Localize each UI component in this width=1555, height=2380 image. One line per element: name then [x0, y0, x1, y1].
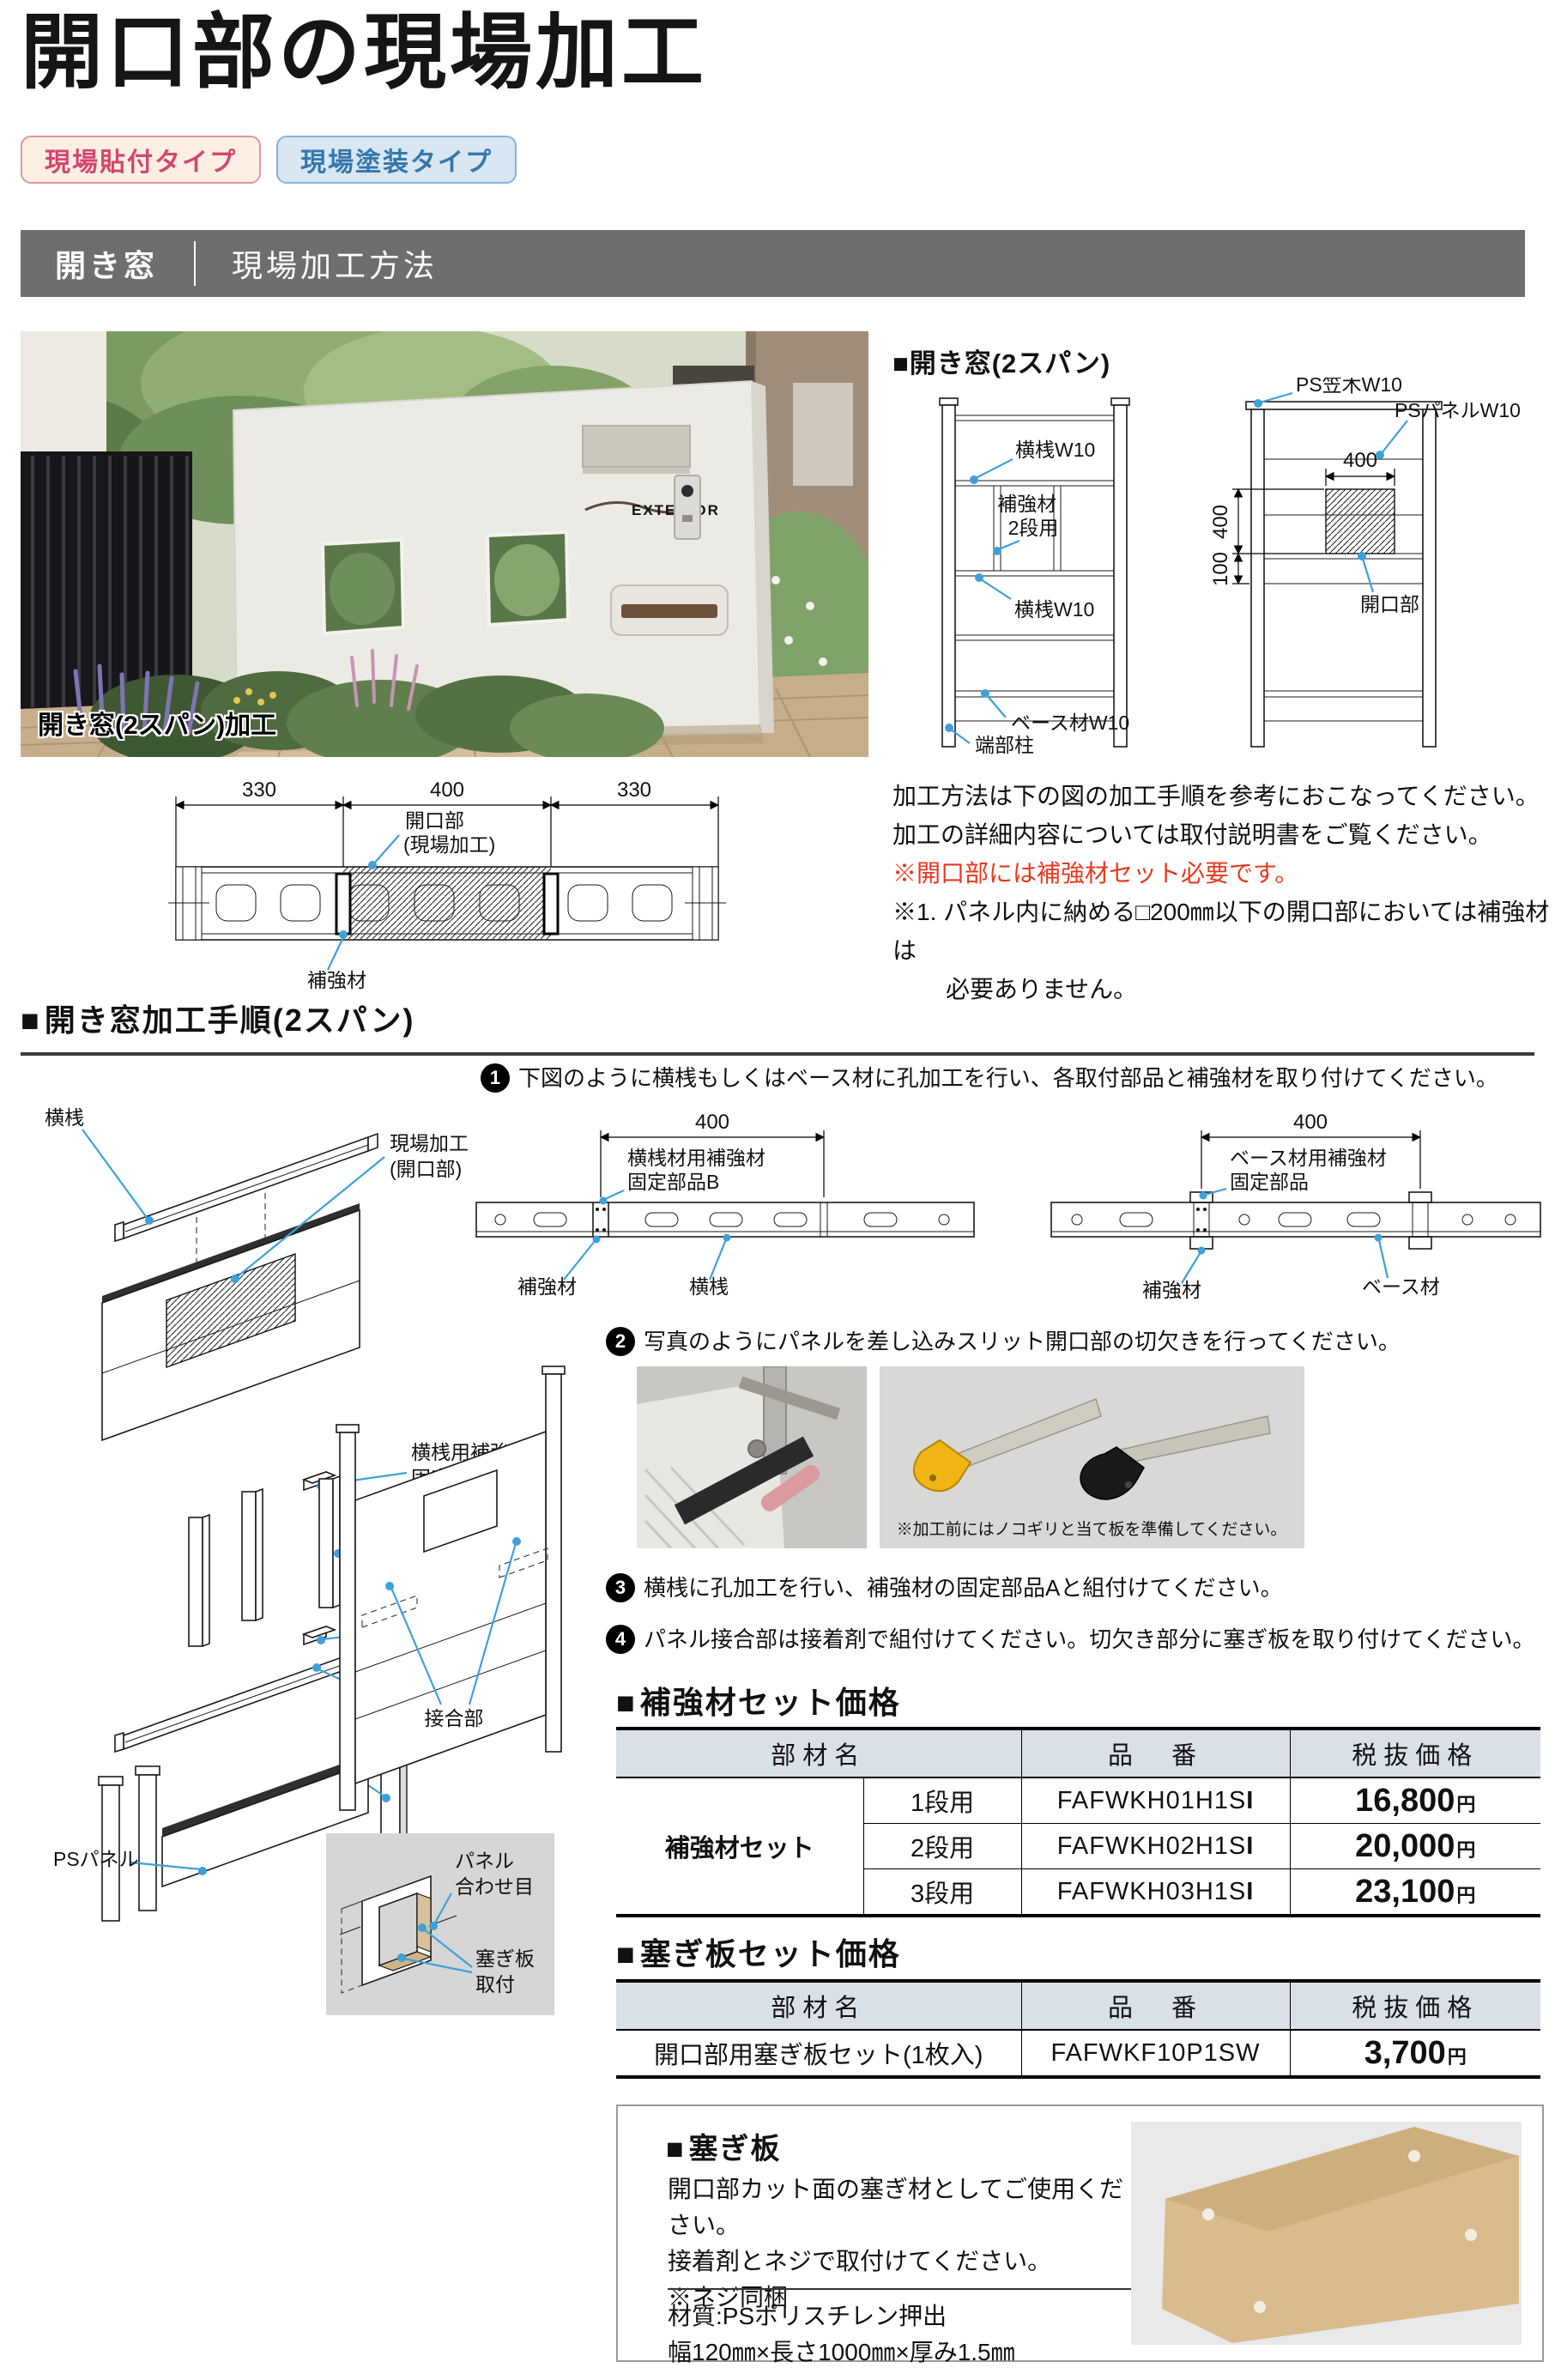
spec-line-size: 幅120㎜×長さ1000㎜×厚み1.5㎜ [668, 2335, 1148, 2371]
label-base-fixing: ベース材用補強材 固定部品 [1230, 1147, 1392, 1193]
badge-onsite-paste-type: 現場貼付タイプ [21, 136, 261, 184]
heading-square-icon: ■ [616, 1936, 637, 1971]
label-base-member: ベース材 [1362, 1275, 1440, 1298]
step-3-number: 3 [606, 1573, 635, 1602]
plug-plate-description: 開口部カット面の塞ぎ材としてご使用ください。 接着剤とネジで取付けてください。 … [668, 2171, 1131, 2316]
opening-hatch-area [343, 867, 551, 940]
step1-rail-diagrams: 400 横桟材用補強材 固定部品B 補強材 横桟 [468, 1101, 1545, 1303]
badge-onsite-paint-type: 現場塗装タイプ [276, 136, 517, 184]
dim-400-center: 400 [430, 778, 464, 802]
col-header-part-name: 部材名 [616, 1981, 1021, 2030]
section-bar-right-label: 現場加工方法 [232, 241, 438, 286]
plug-plate-spec: 材質:PSポリスチレン押出 幅120㎜×長さ1000㎜×厚み1.5㎜ [668, 2298, 1148, 2371]
col-header-part-number: 品 番 [1021, 1729, 1290, 1777]
price-cell: 16,800円 [1290, 1777, 1540, 1824]
reinforce-bar-left [336, 874, 350, 934]
table-row: 補強材セット 1段用 FAFWKH01H1SI 16,800円 [616, 1777, 1540, 1824]
cutting-work-photo [637, 1366, 867, 1548]
col-header-part-name: 部材名 [616, 1729, 1021, 1777]
info-line-2: 接着剤とネジで取付けてください。 [668, 2244, 1131, 2280]
label-ps-panel: PSパネルW10 [1395, 399, 1521, 421]
code-cell: FAFWKH03H1SI [1021, 1869, 1290, 1917]
dim-400: 400 [1293, 1111, 1328, 1134]
spec-line-material: 材質:PSポリスチレン押出 [668, 2298, 1148, 2335]
size-cell: 1段用 [863, 1777, 1021, 1824]
label-ps-panel: PSパネル [53, 1848, 139, 1870]
dim-400-width: 400 [1343, 449, 1377, 472]
note-line-1: 加工方法は下の図の加工手順を参考におこなってください。 [892, 777, 1553, 815]
section-bar-left-label: 開き窓 [55, 241, 158, 286]
label-reinforce-2dan: 補強材 2段用 [997, 493, 1062, 539]
note-line-4: ※1. パネル内に納める□200㎜以下の開口部においては補強材は [892, 893, 1553, 970]
step-4-number: 4 [606, 1625, 635, 1654]
heading-square-icon: ■ [21, 1002, 41, 1038]
saw-tools-photo: ※加工前にはノコギリと当て板を準備してください。 [880, 1366, 1304, 1548]
table-row: 開口部用塞ぎ板セット(1枚入) FAFWKF10P1SW 3,700円 [616, 2030, 1540, 2077]
heading-square-icon: ■ [616, 1685, 637, 1720]
info-line-1: 開口部カット面の塞ぎ材としてご使用ください。 [668, 2171, 1131, 2244]
code-cell: FAFWKH02H1SI [1021, 1824, 1290, 1869]
plug-plate-info-box: ■塞ぎ板 開口部カット面の塞ぎ材としてご使用ください。 接着剤とネジで取付けてく… [616, 2104, 1544, 2362]
spec-heading: ■開き窓(2スパン) [892, 342, 1110, 380]
plug-plate-heading: ■塞ぎ板 [666, 2125, 782, 2167]
size-cell: 2段用 [863, 1824, 1021, 1869]
name-cell: 開口部用塞ぎ板セット(1枚入) [616, 2030, 1021, 2077]
tools-photo-note: ※加工前にはノコギリと当て板を準備してください。 [897, 1520, 1287, 1539]
dim-100-offset: 100 [1209, 552, 1232, 586]
procedure-heading: ■開き窓加工手順(2スパン) [21, 996, 415, 1040]
label-rail-top: 横桟 [45, 1106, 84, 1129]
step-2-number: 2 [606, 1327, 635, 1356]
group-cell: 補強材セット [616, 1777, 863, 1916]
heading-square-icon: ■ [666, 2133, 686, 2165]
label-reinforce: 補強材 [307, 969, 366, 991]
opening-hatch [1326, 489, 1395, 554]
joint-panel-diagram: 接合部 [336, 1366, 565, 1810]
note-line-2: 加工の詳細内容については取付説明書をご覧ください。 [892, 815, 1553, 854]
dim-330-left: 330 [242, 778, 276, 802]
section-header-bar: 開き窓 現場加工方法 [21, 230, 1525, 297]
col-header-price: 税抜価格 [1290, 1729, 1540, 1777]
label-opening: 開口部 [1360, 593, 1419, 615]
dim-330-right: 330 [617, 778, 651, 802]
processing-notes: 加工方法は下の図の加工手順を参考におこなってください。 加工の詳細内容については… [892, 777, 1553, 1008]
step-1-text: 下図のように横桟もしくはベース材に孔加工を行い、各取付部品と補強材を取り付けてく… [518, 1063, 1498, 1093]
reinforce-bar-right [544, 874, 558, 934]
label-opening-site: 開口部 (現場加工) [403, 809, 495, 856]
note-line-5: 必要ありません。 [892, 970, 1553, 1008]
step-1-number: 1 [481, 1063, 510, 1093]
plug-plate-photo [1131, 2122, 1522, 2345]
label-end-post: 端部柱 [975, 734, 1034, 756]
step-4-text: パネル接合部は接着剤で組付けてください。切欠き部分に塞ぎ板を取り付けてください。 [644, 1624, 1534, 1655]
section-rule [21, 1052, 1534, 1056]
label-rail-fixing-b: 横桟材用補強材 固定部品B [627, 1147, 771, 1193]
label-rail: 横桟 [689, 1275, 729, 1298]
plug-plate-inset: パネル 合わせ目 塞ぎ板 取付 [326, 1833, 554, 2015]
reinforce-price-heading: ■補強材セット価格 [616, 1678, 901, 1723]
col-header-part-number: 品 番 [1021, 1981, 1290, 2030]
label-reinforce: 補強材 [1142, 1279, 1201, 1301]
base-hole-diagram: 400 ベース材用補強材 固定部品 補強材 ベース材 [1051, 1111, 1540, 1301]
ladder-elevation-right: 400 400 100 PS笠木W10 PSパネルW10 開口部 [1209, 378, 1521, 747]
label-base-member: ベース材W10 [1011, 712, 1129, 734]
step-1: 1 下図のように横桟もしくはベース材に孔加工を行い、各取付部品と補強材を取り付け… [481, 1063, 1545, 1093]
photo-caption: 開き窓(2スパン)加工 [38, 704, 276, 742]
code-cell: FAFWKF10P1SW [1021, 2030, 1290, 2077]
wall-top-box [583, 426, 690, 467]
heading-square-icon: ■ [892, 348, 910, 378]
info-divider [668, 2288, 1131, 2290]
label-rail-top: 横桟W10 [1015, 439, 1095, 461]
label-site-processing: 現場加工 (開口部) [390, 1132, 474, 1180]
plug-plate-side [417, 1893, 431, 1952]
col-header-price: 税抜価格 [1290, 1981, 1540, 2030]
dim-400: 400 [695, 1111, 729, 1134]
garden-photo: EXTERIOR 開き窓( [21, 331, 868, 757]
section-bar-divider [194, 241, 196, 286]
dimension-diagram: 330 400 330 開口部 (現場加工) [120, 771, 755, 992]
price-cell: 3,700円 [1290, 2030, 1540, 2077]
plug-plate-price-heading: ■塞ぎ板セット価格 [616, 1929, 901, 1974]
label-ps-cap: PS笠木W10 [1296, 378, 1402, 396]
label-joint: 接合部 [425, 1707, 484, 1729]
spec-ladder-diagrams: 横桟W10 補強材 2段用 横桟W10 ベース材W10 端部柱 [892, 378, 1541, 760]
plug-plate-price-table: 部材名 品 番 税抜価格 開口部用塞ぎ板セット(1枚入) FAFWKF10P1S… [616, 1979, 1540, 2079]
price-cell: 20,000円 [1290, 1824, 1540, 1869]
catalog-page: 開口部の現場加工 現場貼付タイプ 現場塗装タイプ 開き窓 現場加工方法 [0, 0, 1555, 2380]
note-line-3-alert: ※開口部には補強材セット必要です。 [892, 854, 1553, 893]
label-rail-mid: 横桟W10 [1014, 598, 1094, 621]
label-reinforce: 補強材 [517, 1275, 577, 1298]
rail-hole-diagram: 400 横桟材用補強材 固定部品B 補強材 横桟 [476, 1111, 974, 1298]
page-title: 開口部の現場加工 [21, 12, 707, 94]
dim-400-height: 400 [1209, 505, 1232, 539]
step-3: 3 横桟に孔加工を行い、補強材の固定部品Aと組付けてください。 [606, 1572, 1541, 1603]
reinforce-price-table: 部材名 品 番 税抜価格 補強材セット 1段用 FAFWKH01H1SI 16,… [616, 1727, 1540, 1917]
step-3-text: 横桟に孔加工を行い、補強材の固定部品Aと組付けてください。 [644, 1572, 1283, 1603]
step-2: 2 写真のようにパネルを差し込みスリット開口部の切欠きを行ってください。 [606, 1326, 1533, 1357]
size-cell: 3段用 [863, 1869, 1021, 1917]
step-2-text: 写真のようにパネルを差し込みスリット開口部の切欠きを行ってください。 [644, 1326, 1401, 1357]
code-cell: FAFWKH01H1SI [1021, 1777, 1290, 1824]
ladder-elevation-left: 横桟W10 補強材 2段用 横桟W10 ベース材W10 端部柱 [940, 398, 1129, 756]
price-cell: 23,100円 [1290, 1869, 1540, 1917]
garden-photo-illustration: EXTERIOR [21, 331, 868, 757]
step-4: 4 パネル接合部は接着剤で組付けてください。切欠き部分に塞ぎ板を取り付けてくださ… [606, 1624, 1541, 1655]
